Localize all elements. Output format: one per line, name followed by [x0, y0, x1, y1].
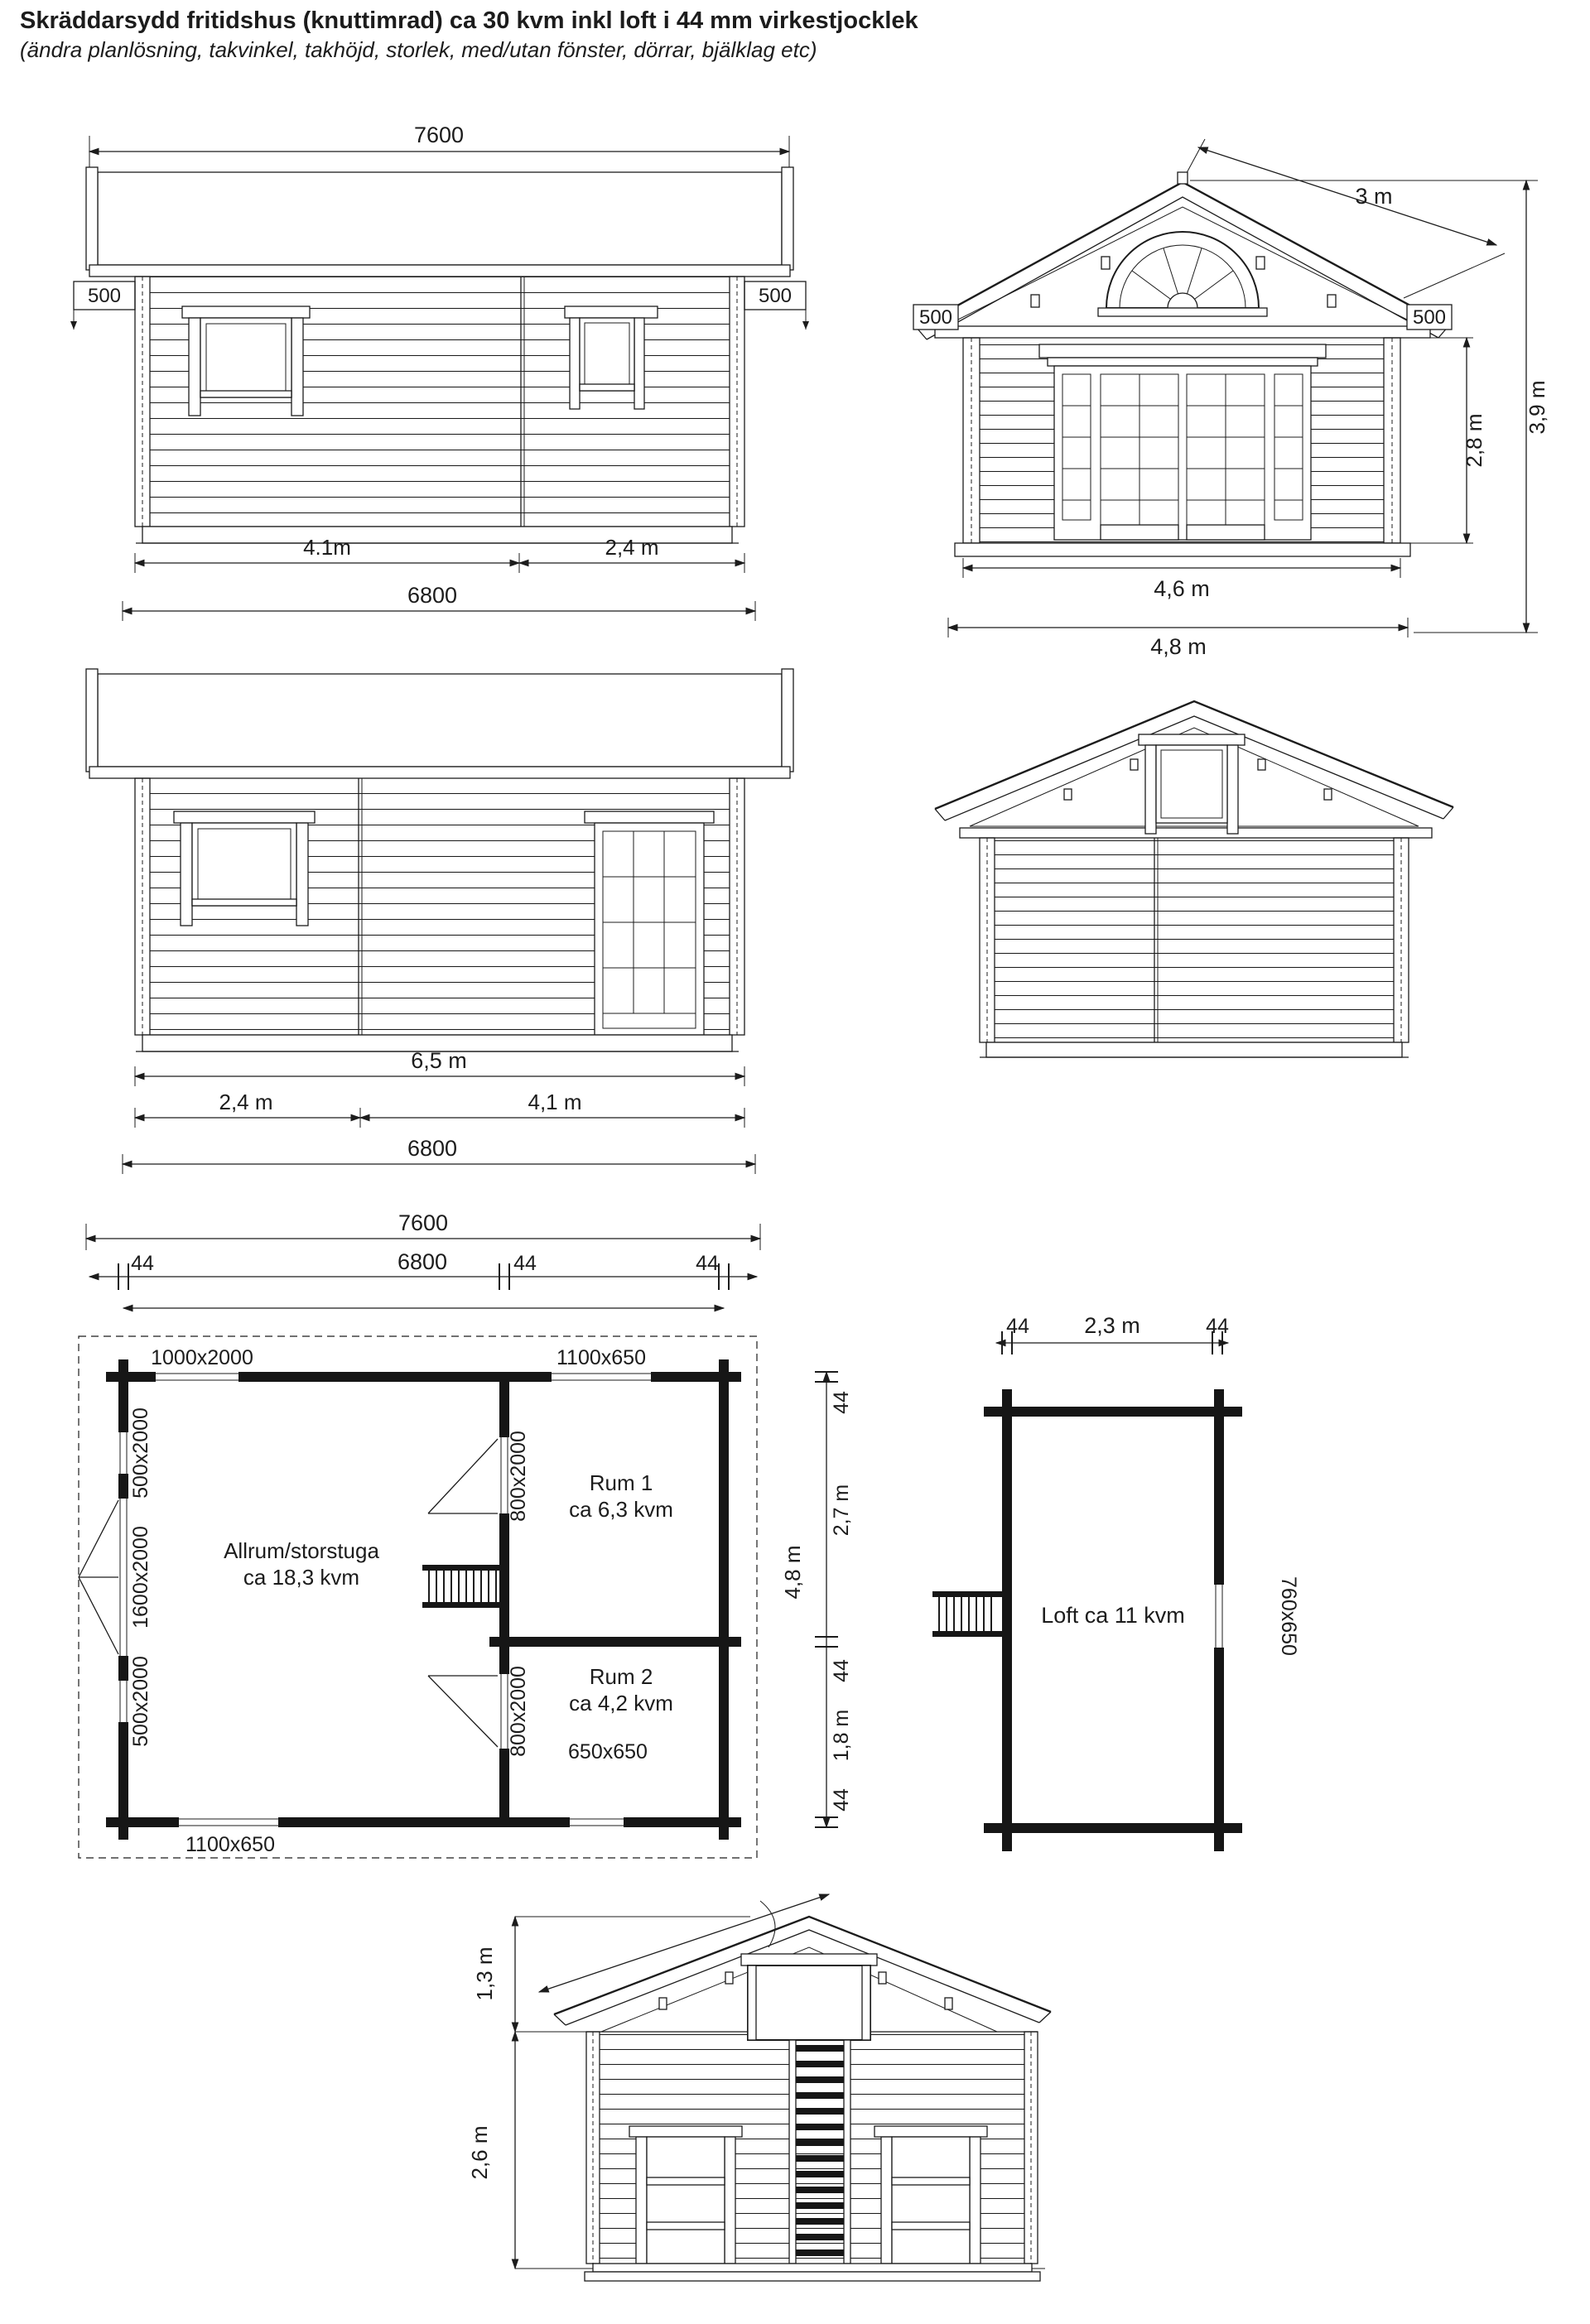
overall-width-label: 7600 — [398, 1210, 448, 1235]
loft-ladder-plan — [422, 1565, 501, 1608]
front-width-label: 4,6 m — [1154, 576, 1210, 601]
floor-base — [585, 2264, 1040, 2281]
span-right-label: 4,1 m — [528, 1090, 581, 1114]
room-main-area: ca 18,3 kvm — [243, 1565, 359, 1590]
window-bottom-left-label: 1100x650 — [185, 1833, 275, 1856]
roof — [86, 669, 793, 778]
dim-wall-height: 2,8 m — [1405, 338, 1486, 543]
arched-gable-window — [1098, 232, 1267, 316]
room-height-label: 2,6 m — [467, 2125, 492, 2179]
side-elevation-a-drawing: 7600 500 500 — [50, 104, 845, 655]
door-rum1-label: 800x2000 — [507, 1431, 530, 1522]
section-drawing: 1,3 m 2,6 m — [460, 1886, 1123, 2324]
blueprint-page: { "title": "Skräddarsydd fritidshus (knu… — [0, 0, 1590, 2324]
floor-plan-drawing: 7600 44 6800 44 44 — [40, 1210, 934, 1914]
dim-wall-chain: 44 6800 44 44 — [89, 1249, 757, 1290]
room1-area: ca 6,3 kvm — [569, 1497, 673, 1522]
overhang-right-box: 500 — [1407, 305, 1452, 330]
left-door-label: 1600x2000 — [129, 1526, 152, 1629]
wall-left-label: 44 — [131, 1252, 154, 1275]
left-window-upper-label: 500x2000 — [129, 1407, 152, 1499]
dim-loft-width: 44 2,3 m 44 — [996, 1313, 1229, 1354]
loft-window-label: 760x650 — [1277, 1576, 1300, 1656]
side-elevation-b-drawing: 6,5 m 2,4 m 4,1 m 6800 — [50, 652, 845, 1199]
wall-right-label: 44 — [696, 1252, 719, 1275]
room-main-name: Allrum/storstuga — [224, 1538, 379, 1563]
depth-total-label: 4,8 m — [780, 1545, 805, 1599]
overhang-right-label: 500 — [759, 285, 792, 307]
overhang-left-label: 500 — [88, 285, 121, 307]
dim-depth-chain: 44 2,7 m 44 1,8 m 44 4,8 m — [780, 1372, 853, 1827]
roof — [86, 167, 793, 277]
page-subtitle: (ändra planlösning, takvinkel, takhöjd, … — [20, 37, 1179, 63]
log-wall — [980, 838, 1409, 1042]
dim-roof-width: 7600 — [89, 123, 789, 167]
interior-door-right — [874, 2126, 987, 2264]
overhang-left-box: 500 — [70, 281, 135, 330]
span-right-label: 2,4 m — [605, 535, 658, 560]
loft-height-label: 1,3 m — [472, 1946, 497, 2000]
door-rum2-label: 800x2000 — [507, 1666, 530, 1757]
plinth — [955, 543, 1410, 556]
wall-mid-label: 44 — [513, 1252, 537, 1275]
dim-spans: 2,4 m 4,1 m — [135, 1090, 744, 1128]
plan-walls — [106, 1359, 741, 1840]
loft-wall-left-label: 44 — [1006, 1315, 1029, 1338]
loft-plan-drawing: 44 2,3 m 44 Loft ca 11 kvm 760x650 — [909, 1257, 1439, 1903]
dim-wall-length: 6800 — [123, 583, 755, 621]
roof-width-label: 7600 — [414, 123, 464, 147]
loft-room-label: Loft ca 11 kvm — [1041, 1603, 1185, 1628]
rear-elevation-drawing — [890, 658, 1503, 1105]
loft-width-label: 2,3 m — [1084, 1313, 1140, 1338]
depth-wall-bottom-label: 44 — [830, 1788, 853, 1812]
plinth — [980, 1042, 1409, 1057]
wall-length-label: 6800 — [407, 583, 457, 608]
overhang-left-label: 500 — [919, 306, 952, 329]
dim-front-width: 4,6 m — [963, 558, 1400, 601]
window-bottom-right-label: 650x650 — [568, 1740, 648, 1763]
gable-window — [1139, 734, 1245, 834]
depth-rum1-label: 2,7 m — [830, 1484, 853, 1537]
overhang-right-label: 500 — [1413, 306, 1446, 329]
dim-overall-width: 7600 — [86, 1210, 760, 1250]
left-window-lower-label: 500x2000 — [129, 1656, 152, 1747]
span-left-label: 2,4 m — [219, 1090, 272, 1114]
depth-wall-top-label: 44 — [830, 1391, 853, 1414]
roof-overhang-outline — [79, 1336, 757, 1858]
depth-wall-mid-label: 44 — [830, 1659, 853, 1682]
glazed-door — [585, 811, 714, 1035]
room1-name: Rum 1 — [590, 1470, 653, 1495]
inner-length-label: 6800 — [397, 1249, 447, 1274]
overhang-right-box: 500 — [744, 281, 809, 330]
front-elevation-drawing: 3 m 500 500 — [865, 106, 1590, 657]
loft-ladder — [932, 1591, 1002, 1637]
french-door-unit — [1039, 344, 1326, 540]
wall-length-label: 6800 — [407, 1136, 457, 1161]
dim-total-width: 4,8 m — [948, 618, 1408, 659]
total-height-label: 3,9 m — [1525, 380, 1549, 434]
room2-area: ca 4,2 kvm — [569, 1691, 673, 1715]
overhang-left-box: 500 — [913, 305, 958, 330]
interior-door-left — [629, 2126, 742, 2264]
window-top-right-label: 1100x650 — [556, 1346, 646, 1369]
window-top-left-label: 1000x2000 — [151, 1346, 253, 1369]
wall-top-length-label: 6,5 m — [411, 1048, 467, 1073]
depth-rum2-label: 1,8 m — [830, 1710, 853, 1762]
dim-wall-top: 6,5 m — [135, 1048, 744, 1086]
plan-labels: 1000x2000 1100x650 1100x650 650x650 500x… — [129, 1346, 673, 1856]
loft-opening — [741, 1954, 877, 2040]
roof-slope-label: 3 m — [1355, 184, 1392, 209]
room2-name: Rum 2 — [590, 1664, 653, 1689]
wall-height-label: 2,8 m — [1462, 413, 1486, 467]
span-left-label: 4.1m — [303, 535, 351, 560]
dim-wall-length: 6800 — [123, 1136, 755, 1174]
page-title: Skräddarsydd fritidshus (knuttimrad) ca … — [20, 7, 1179, 36]
page-header: Skräddarsydd fritidshus (knuttimrad) ca … — [20, 7, 1179, 63]
total-width-label: 4,8 m — [1150, 634, 1207, 659]
loft-wall-right-label: 44 — [1206, 1315, 1229, 1338]
